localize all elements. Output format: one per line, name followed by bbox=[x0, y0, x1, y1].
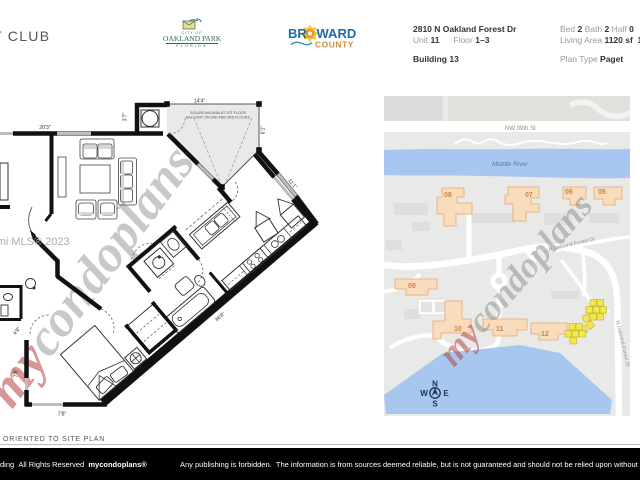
svg-text:12: 12 bbox=[541, 331, 549, 338]
svg-text:E: E bbox=[443, 389, 449, 398]
svg-text:N: N bbox=[432, 379, 438, 388]
svg-text:3'7": 3'7" bbox=[123, 113, 129, 122]
svg-text:NW 39th St: NW 39th St bbox=[505, 126, 536, 132]
svg-text:W: W bbox=[420, 389, 428, 398]
svg-text:Miami MLS® 2023: Miami MLS® 2023 bbox=[0, 236, 70, 248]
svg-text:6'1": 6'1" bbox=[261, 126, 267, 135]
svg-text:S: S bbox=[432, 400, 438, 409]
svg-text:SOLARIUM/LANAI AT 1ST FLOOR: SOLARIUM/LANAI AT 1ST FLOOR bbox=[190, 111, 247, 115]
svg-text:09: 09 bbox=[408, 283, 416, 290]
svg-text:08: 08 bbox=[444, 192, 452, 199]
svg-text:07: 07 bbox=[525, 192, 533, 199]
svg-text:BALCONY ON 2ND AND 3RD FLOORS: BALCONY ON 2ND AND 3RD FLOORS bbox=[186, 116, 251, 120]
svg-text:20'3": 20'3" bbox=[39, 125, 51, 131]
svg-text:Middle River: Middle River bbox=[492, 161, 529, 168]
svg-text:7'8": 7'8" bbox=[58, 412, 67, 418]
svg-text:mycondoplans: mycondoplans bbox=[0, 135, 206, 417]
svg-text:05: 05 bbox=[598, 189, 606, 196]
svg-text:36'8": 36'8" bbox=[214, 311, 227, 323]
svg-text:14'4": 14'4" bbox=[194, 99, 206, 105]
svg-text:7'8": 7'8" bbox=[14, 369, 20, 378]
